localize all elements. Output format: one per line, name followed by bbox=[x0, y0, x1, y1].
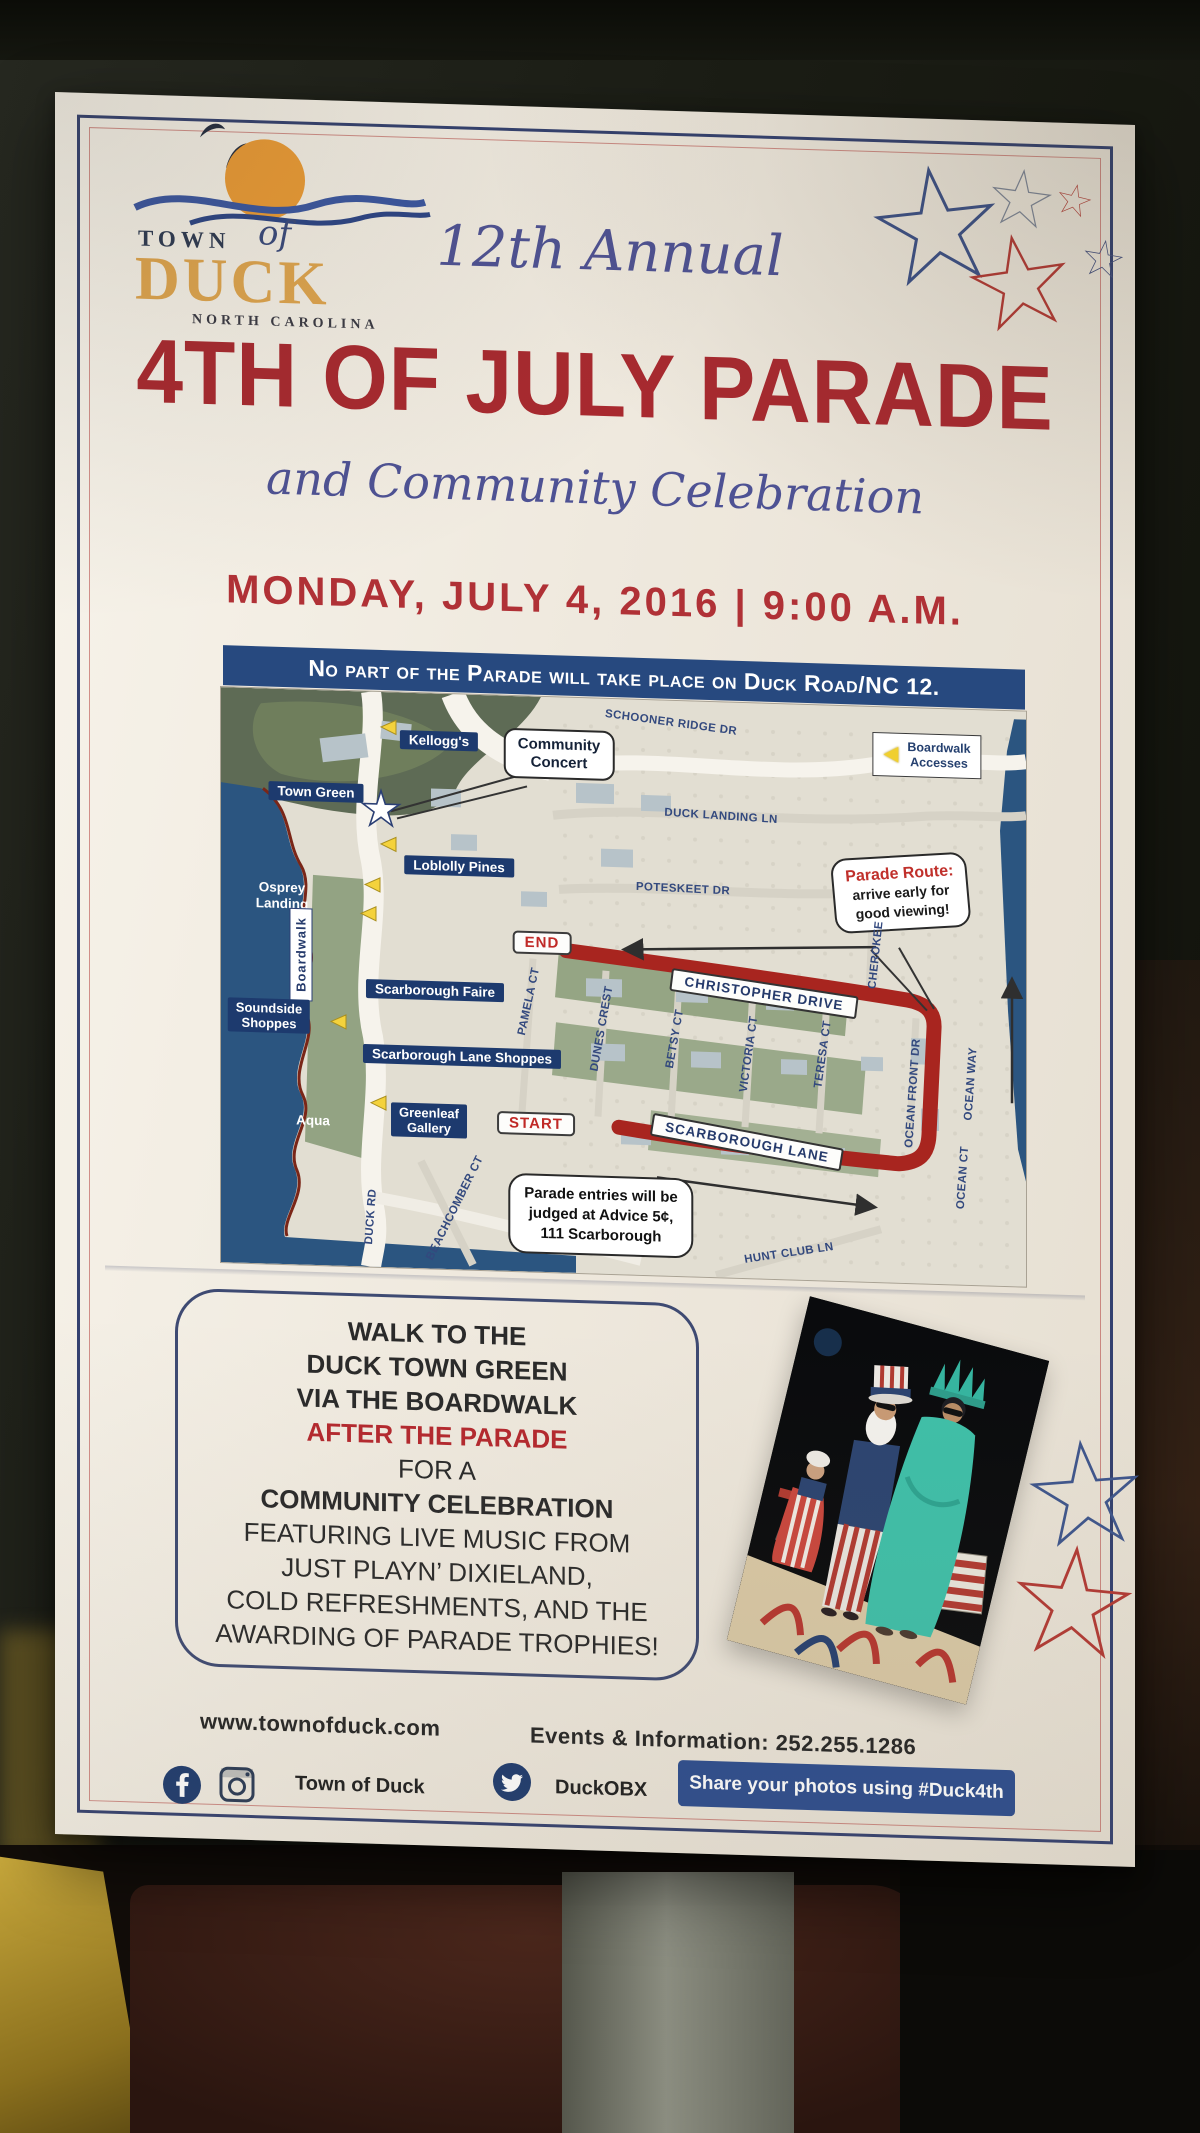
judging-line3: 111 Scarborough bbox=[524, 1223, 677, 1248]
twitter-icon bbox=[492, 1761, 532, 1802]
legend-label: Boardwalk Accesses bbox=[907, 740, 970, 772]
parade-route-map: Kellogg's Community Concert Town Green L… bbox=[221, 687, 1026, 1287]
twitter-handle: DuckOBX bbox=[555, 1776, 647, 1802]
route-end-badge: END bbox=[513, 930, 572, 955]
concert-line2: Concert bbox=[518, 753, 601, 774]
parade-poster: TOWN of DUCK NORTH CAROLINA 12th Annual … bbox=[55, 92, 1135, 1867]
medium-gray-star-icon bbox=[990, 167, 1052, 228]
large-red-star-icon bbox=[967, 231, 1072, 330]
callout-community-concert: Community Concert bbox=[504, 728, 615, 781]
map-label-greenleaf-gallery: Greenleaf Gallery bbox=[391, 1102, 467, 1138]
bird-icon bbox=[200, 123, 225, 138]
small-blue-star-icon bbox=[1083, 238, 1124, 278]
map-label-aqua: Aqua bbox=[296, 1112, 330, 1129]
callout-parade-route: Parade Route: arrive early for good view… bbox=[830, 852, 972, 935]
logo-duck-text: DUCK bbox=[135, 247, 330, 315]
blue-outline-star-icon bbox=[1030, 1440, 1142, 1545]
map-label-kelloggs: Kellogg's bbox=[400, 730, 478, 751]
map-label-soundside-shoppes: Soundside Shoppes bbox=[228, 997, 310, 1034]
wave-icon bbox=[190, 207, 430, 230]
map-label-town-green: Town Green bbox=[268, 781, 363, 803]
dark-floor-right bbox=[900, 1850, 1200, 2133]
instagram-icon bbox=[218, 1765, 256, 1804]
wood-furniture bbox=[130, 1885, 930, 2133]
map-label-loblolly-pines: Loblolly Pines bbox=[404, 855, 514, 877]
soundside-line2: Shoppes bbox=[236, 1015, 302, 1032]
gray-pillar bbox=[562, 1872, 794, 2133]
legend-triangle-icon bbox=[883, 746, 898, 762]
red-outline-star-icon bbox=[1016, 1544, 1130, 1657]
boardwalk-accesses-legend: Boardwalk Accesses bbox=[872, 732, 981, 779]
small-red-star-icon bbox=[1056, 182, 1092, 218]
facebook-instagram-handle: Town of Duck bbox=[295, 1772, 425, 1799]
photo-of-poster-on-glass-door: { "poster": { "logo": {"town": "TOWN", "… bbox=[0, 0, 1200, 2133]
osprey-line1: Osprey bbox=[256, 879, 309, 897]
side-star-pair bbox=[1005, 1421, 1175, 1686]
map-label-boardwalk: Boardwalk bbox=[290, 908, 313, 1001]
route-start-badge: START bbox=[497, 1111, 575, 1136]
edition-text: 12th Annual bbox=[395, 212, 825, 290]
callout-judging: Parade entries will be judged at Advice … bbox=[508, 1173, 693, 1259]
community-celebration-box: WALK TO THE DUCK TOWN GREEN VIA THE BOAR… bbox=[175, 1288, 699, 1682]
greenleaf-line2: Gallery bbox=[399, 1120, 459, 1137]
star-cluster bbox=[865, 127, 1135, 365]
large-blue-star-icon bbox=[872, 164, 1000, 284]
facebook-icon bbox=[162, 1764, 202, 1805]
legend-line2: Accesses bbox=[907, 755, 970, 772]
